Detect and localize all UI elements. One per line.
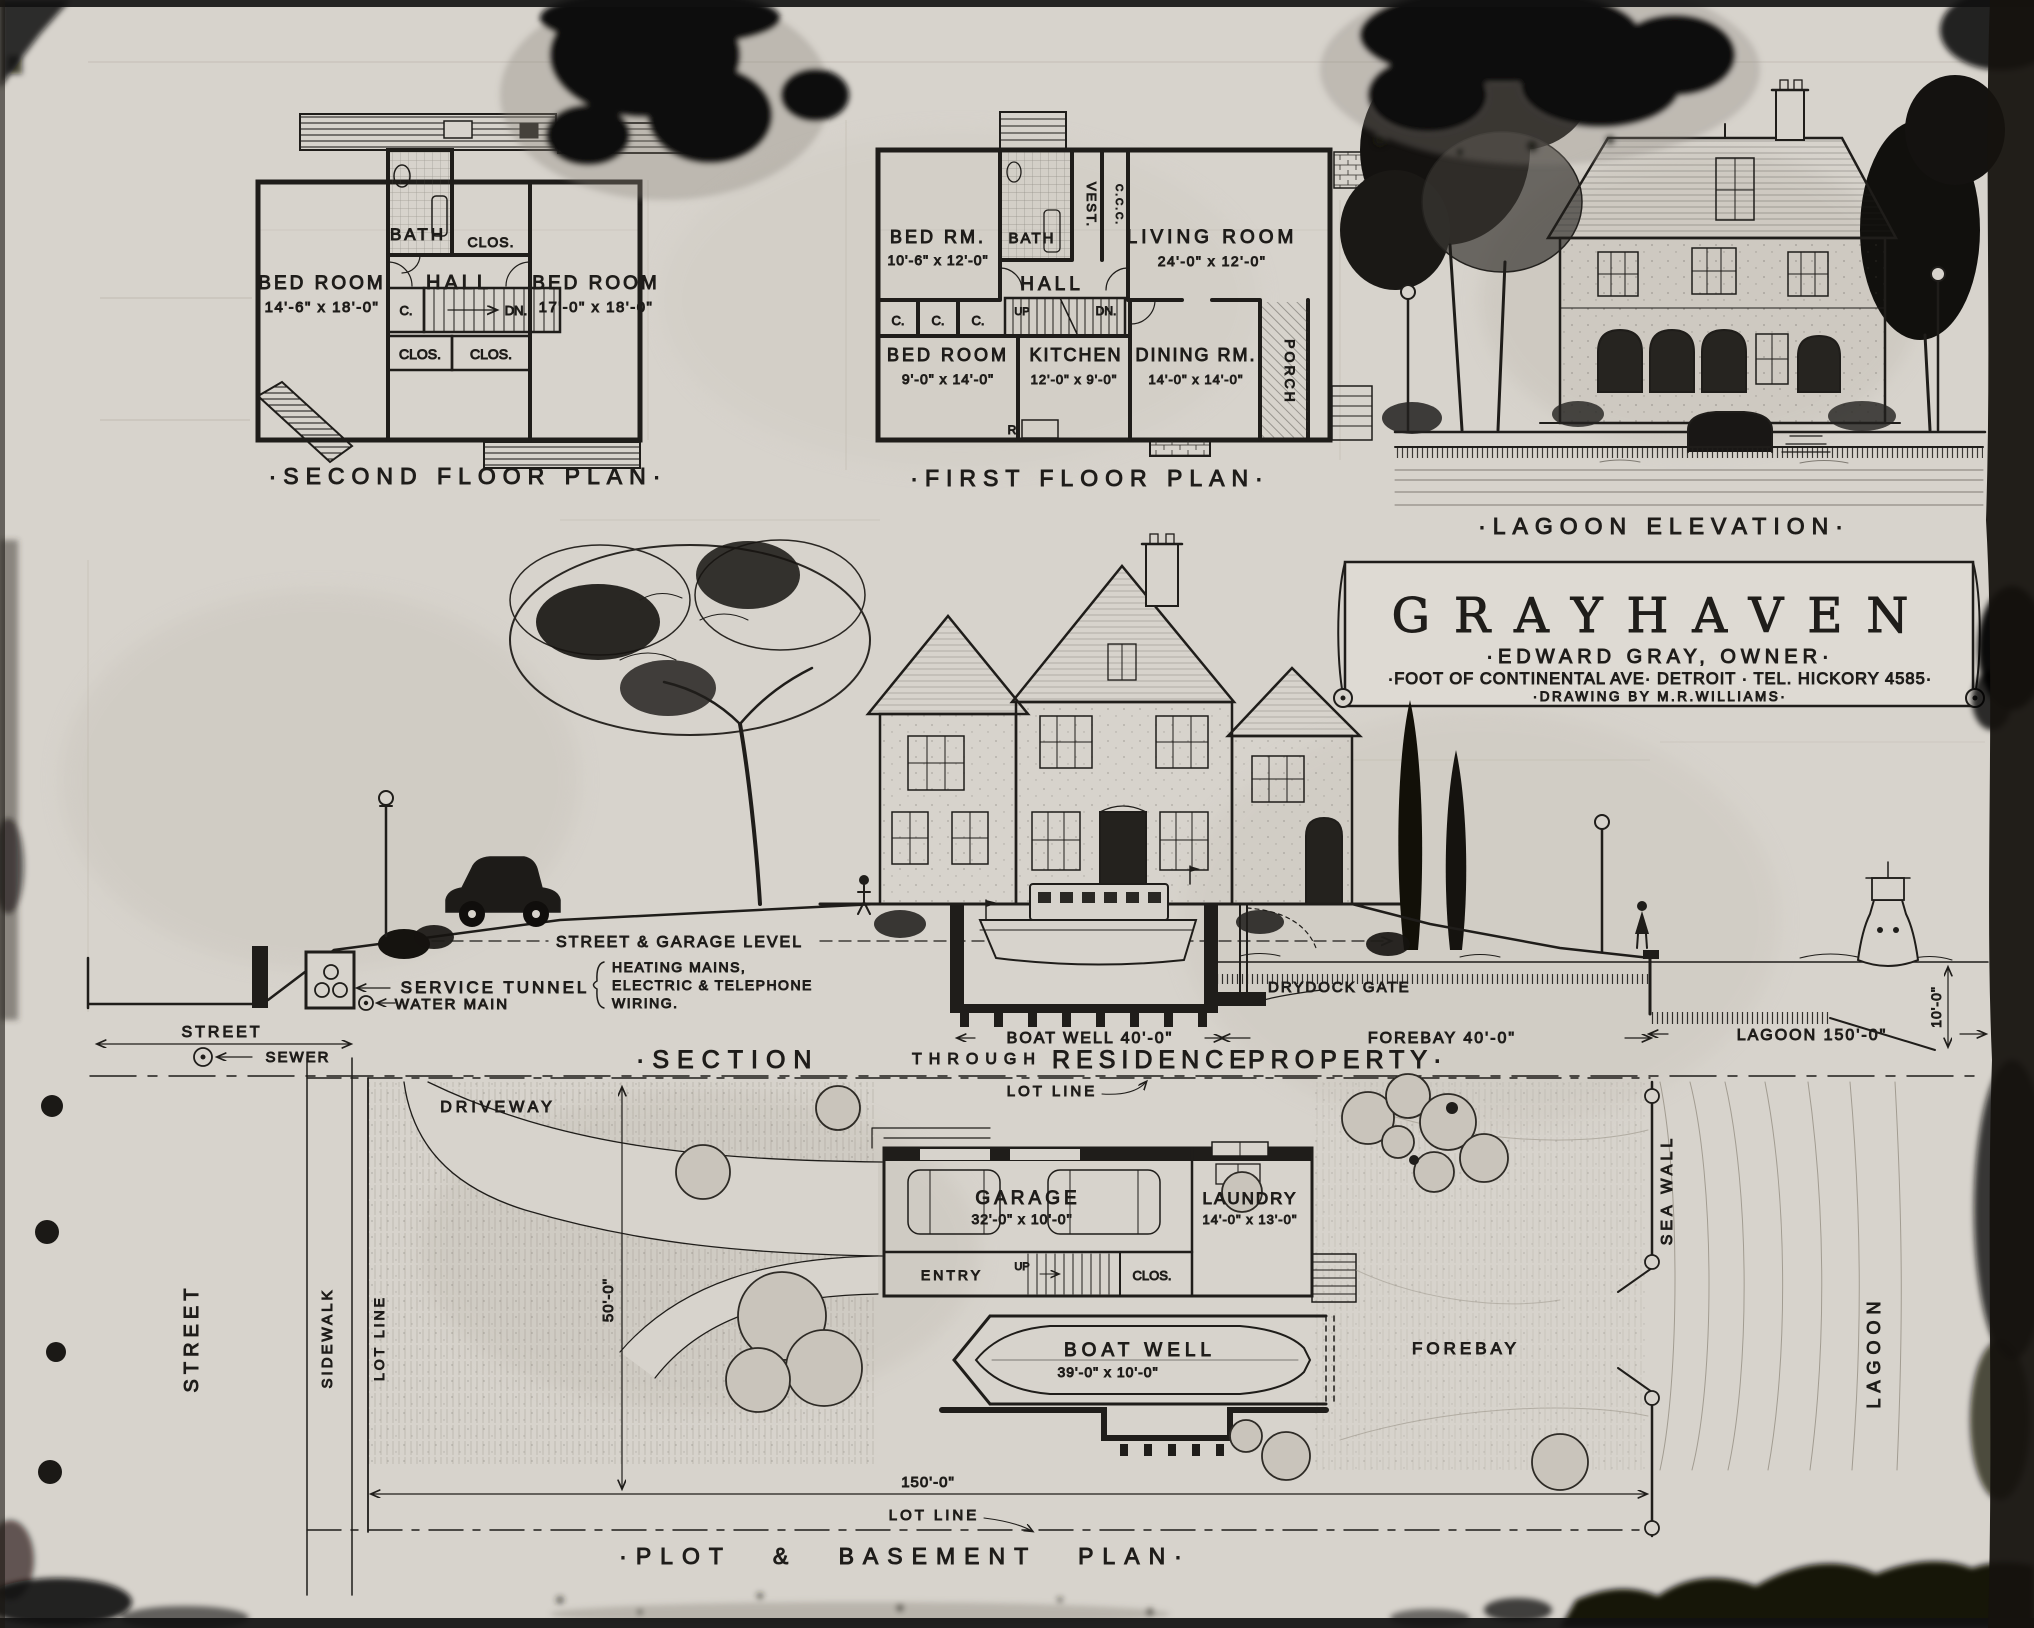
project-name: GRAYHAVEN <box>1392 588 1933 644</box>
room-dims: 17'-0" x 18'-0" <box>539 299 654 316</box>
room-label: BED ROOM <box>887 345 1009 365</box>
level-label: STREET & GARAGE LEVEL <box>556 934 803 951</box>
room-label: BATH <box>1009 230 1056 247</box>
room-label: C. <box>400 303 413 318</box>
sidewalk-label-vertical: SIDEWALK <box>319 1288 336 1389</box>
length-dim: 150'-0" <box>901 1474 955 1491</box>
room-label-porch: PORCH <box>1282 339 1298 405</box>
room-label: LIVING ROOM <box>1127 227 1298 248</box>
room-label-closets: C.C.C. <box>1113 184 1124 226</box>
sea-wall-label-vertical: SEA WALL <box>1659 1135 1676 1246</box>
room-label: C. <box>932 313 945 328</box>
title-banner: GRAYHAVEN ·EDWARD GRAY, OWNER· ·FOOT OF … <box>1334 562 1984 707</box>
room-label: CLOS. <box>399 346 441 362</box>
owner-line: ·EDWARD GRAY, OWNER· <box>1486 646 1833 668</box>
credit-line: ·DRAWING BY M.R.WILLIAMS· <box>1533 689 1788 704</box>
lot-line-label: LOT LINE <box>1007 1083 1097 1100</box>
room-dims: 24'-0" x 12'-0" <box>1158 253 1267 269</box>
room-dims: 12'-0" x 9'-0" <box>1031 372 1118 387</box>
utilities-label: HEATING MAINS, <box>612 959 746 975</box>
driveway-label: DRIVEWAY <box>440 1099 556 1116</box>
boat-well-dims: 39'-0" x 10'-0" <box>1057 1364 1158 1380</box>
section-title: THROUGH <box>912 1051 1042 1068</box>
room-dims: 14'-0" x 14'-0" <box>1149 372 1244 387</box>
section-title: RESIDENCE <box>1052 1046 1252 1074</box>
room-label: CLOS. <box>470 346 512 362</box>
room-label: KITCHEN <box>1029 345 1122 365</box>
range-label: R <box>1008 423 1017 437</box>
room-dims: 32'-0" x 10'-0" <box>971 1211 1072 1227</box>
stair-label: UP <box>1014 1261 1029 1273</box>
lot-line-label: LOT LINE <box>889 1507 979 1524</box>
room-label: BED RM. <box>890 227 986 247</box>
lagoon-elevation-title: ·LAGOON ELEVATION· <box>1478 513 1850 539</box>
sewer-label: SEWER <box>265 1049 330 1066</box>
lagoon-label-vertical: LAGOON <box>1864 1295 1884 1408</box>
stair-label: DN. <box>505 303 527 318</box>
room-dims: 9'-0" x 14'-0" <box>902 371 994 387</box>
plot-plan-title: ·PLOT & BASEMENT PLAN· <box>619 1543 1191 1569</box>
room-dims: 14'-6" x 18'-0" <box>265 299 380 316</box>
section-title: PROPERTY· <box>1248 1046 1447 1074</box>
width-dim: 50'-0" <box>600 1278 617 1322</box>
forebay-label: FOREBAY <box>1412 1339 1520 1358</box>
room-label: BATH <box>390 225 446 244</box>
room-label: LAUNDRY <box>1203 1189 1298 1208</box>
service-tunnel-label: SERVICE TUNNEL <box>401 978 590 997</box>
drawing-canvas: BED ROOM 14'-6" x 18'-0" HALL BATH CLOS.… <box>0 0 2034 1628</box>
drawing-sheet: BED ROOM 14'-6" x 18'-0" HALL BATH CLOS.… <box>0 0 2034 1628</box>
street-label-vertical: STREET <box>181 1284 203 1393</box>
lot-line-label-vertical: LOT LINE <box>371 1295 387 1381</box>
address-line: ·FOOT OF CONTINENTAL AVE· DETROIT · TEL.… <box>1388 670 1933 688</box>
drydock-gate-label: DRYDOCK GATE <box>1268 979 1411 996</box>
room-label: DINING RM. <box>1136 345 1257 365</box>
first-floor-plan-title: ·FIRST FLOOR PLAN· <box>910 465 1269 491</box>
utilities-label: ELECTRIC & TELEPHONE <box>612 977 813 993</box>
water-main-label: WATER MAIN <box>395 996 509 1013</box>
room-label: HALL <box>1020 274 1084 295</box>
second-floor-plan-title: ·SECOND FLOOR PLAN· <box>269 463 668 489</box>
room-label: CLOS. <box>1132 1268 1171 1283</box>
depth-dim: 10'-0" <box>1928 986 1944 1028</box>
room-label: CLOS. <box>467 234 514 250</box>
room-label: HALL <box>426 272 492 294</box>
room-label: C. <box>972 313 985 328</box>
boat-well-dim: BOAT WELL 40'-0" <box>1007 1030 1174 1047</box>
room-label: GARAGE <box>975 1188 1080 1209</box>
street-label: STREET <box>181 1024 262 1041</box>
section-title: ·SECTION <box>636 1046 819 1074</box>
room-label: C. <box>892 313 905 328</box>
room-label-vest: VEST. <box>1084 182 1099 228</box>
stair-label: UP <box>1014 306 1029 318</box>
utilities-label: WIRING. <box>612 995 679 1011</box>
room-label: ENTRY <box>921 1267 983 1283</box>
room-dims: 10'-6" x 12'-0" <box>887 252 988 268</box>
room-label: BED ROOM <box>258 273 385 294</box>
forebay-dim: FOREBAY 40'-0" <box>1368 1030 1516 1047</box>
stair-label: DN. <box>1096 304 1117 318</box>
boat-well-label: BOAT WELL <box>1064 1340 1216 1361</box>
room-label: BED ROOM <box>532 273 659 294</box>
lagoon-dim: LAGOON 150'-0" <box>1737 1027 1888 1044</box>
room-dims: 14'-0" x 13'-0" <box>1203 1212 1298 1227</box>
